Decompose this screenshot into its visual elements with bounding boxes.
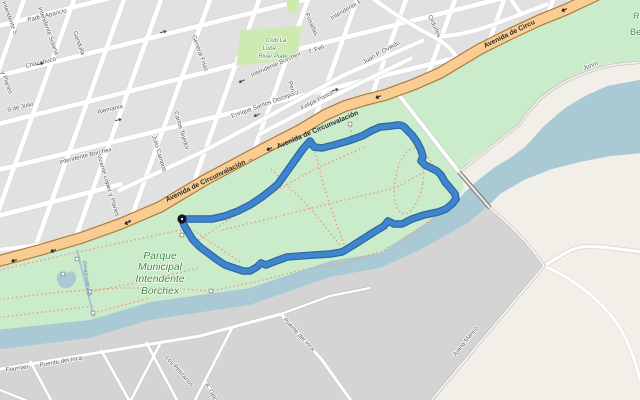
- svg-text:Intendente: Intendente: [135, 274, 184, 285]
- svg-text:Municipal: Municipal: [138, 262, 183, 273]
- svg-text:Parque: Parque: [143, 251, 177, 262]
- svg-text:Club La: Club La: [266, 38, 287, 44]
- svg-text:Be: Be: [630, 27, 640, 37]
- svg-text:Loba -: Loba -: [262, 46, 279, 52]
- svg-text:Rí: Rí: [633, 11, 640, 21]
- svg-text:Borchex: Borchex: [141, 286, 180, 297]
